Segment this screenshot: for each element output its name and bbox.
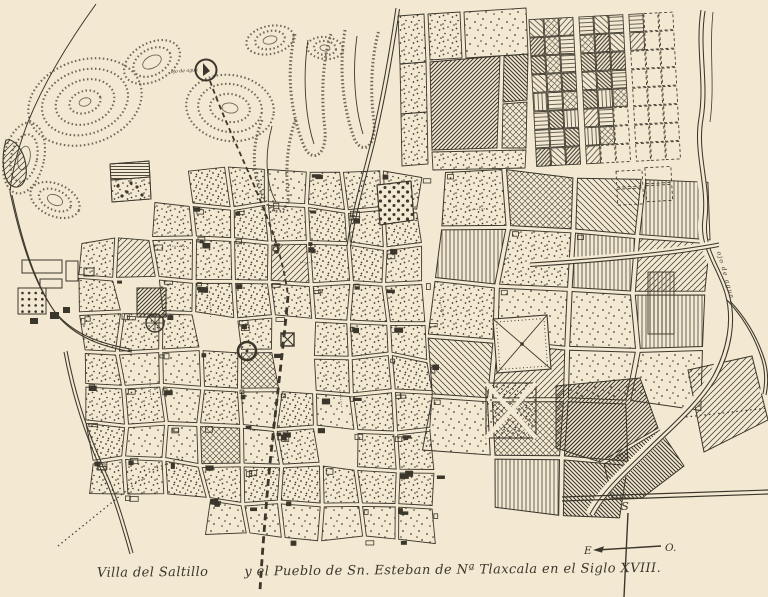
- gully-channel: [305, 40, 314, 144]
- parcel-cell: [579, 16, 594, 34]
- town-block: [241, 392, 278, 428]
- parcel-cell: [563, 91, 578, 109]
- orchard-block: [428, 281, 494, 339]
- town-block: [308, 172, 344, 209]
- town-block: [79, 238, 115, 277]
- tree-dot: [41, 292, 44, 295]
- bold-dot: [129, 181, 132, 184]
- tree-dot: [21, 304, 24, 307]
- building: [434, 514, 438, 519]
- building: [201, 287, 208, 293]
- parcel-cell: [611, 52, 626, 70]
- parcel-cell: [549, 110, 564, 128]
- town-block: [268, 205, 306, 241]
- town-block: [80, 314, 121, 352]
- town-block: [314, 322, 348, 356]
- orchard-block: [428, 338, 493, 398]
- town-block: [188, 167, 230, 207]
- building-solid: [30, 318, 38, 324]
- map-page: ojo de agua ojo de agua S E O. Villa del…: [0, 0, 768, 597]
- parcel-cell: [629, 14, 644, 32]
- historic-map-drawing: ojo de agua ojo de agua S E O.: [0, 0, 768, 597]
- parcel-cell: [551, 147, 566, 165]
- building: [130, 496, 139, 501]
- building-outline: [66, 261, 78, 281]
- town-block: [126, 425, 165, 457]
- town-block: [236, 283, 272, 317]
- bold-dot: [140, 193, 143, 196]
- town-block: [352, 356, 391, 393]
- building: [167, 315, 173, 320]
- town-block: [206, 501, 247, 534]
- tree-dot: [28, 304, 31, 307]
- parcel-cell: [535, 130, 550, 148]
- building: [353, 218, 360, 223]
- town-block: [202, 467, 241, 503]
- parcel-cell: [583, 90, 598, 108]
- parcel-cell: [532, 74, 547, 92]
- bold-dot: [120, 194, 123, 197]
- parcel-cell: [529, 19, 544, 37]
- tree-dot: [34, 304, 37, 307]
- building: [117, 281, 122, 284]
- town-block: [281, 504, 320, 541]
- town-block: [153, 203, 193, 237]
- parcel-cell: [550, 129, 565, 147]
- parcel-cell: [610, 33, 625, 51]
- parcel-cell: [559, 17, 574, 35]
- town-block: [351, 285, 387, 322]
- compass-ew-line: [597, 546, 661, 550]
- parcel-cell: [616, 144, 631, 162]
- town-block: [311, 244, 350, 282]
- town-block: [85, 354, 121, 386]
- hill-contour: [33, 58, 136, 146]
- compass-south-label: S: [621, 499, 629, 513]
- parcel-cell: [663, 86, 678, 104]
- building: [404, 436, 409, 440]
- parcel-cell: [661, 49, 676, 67]
- orchard-block: [648, 272, 674, 334]
- field-strip-cell: [401, 112, 428, 166]
- gully-hachure: [290, 34, 331, 156]
- town-block: [354, 393, 394, 431]
- building: [312, 249, 316, 253]
- parcel-cell: [659, 12, 674, 30]
- town-block: [363, 506, 396, 539]
- building: [318, 428, 325, 433]
- parcel-cell: [595, 34, 610, 52]
- hatched-square: [137, 288, 166, 317]
- parcel-cell: [566, 147, 581, 165]
- hill-contour: [66, 87, 103, 118]
- parcel-cell: [562, 73, 577, 91]
- town-block: [193, 207, 231, 238]
- north-field-strip: [398, 8, 528, 170]
- spring-flag-icon: [203, 63, 210, 76]
- town-block: [117, 238, 156, 277]
- plaza-center-dot: [520, 342, 524, 346]
- town-block: [163, 351, 201, 387]
- town-block: [244, 428, 280, 464]
- town-block: [201, 427, 240, 464]
- field-strip-cell: [430, 56, 500, 150]
- tree-dot: [21, 292, 24, 295]
- building-outline: [40, 279, 62, 288]
- town-block: [392, 356, 432, 391]
- tree-dot: [41, 310, 44, 313]
- hill-contour: [244, 21, 297, 58]
- building: [387, 290, 395, 294]
- field-strip-cell: [432, 150, 526, 170]
- hill-contour: [221, 102, 238, 114]
- building: [400, 511, 408, 515]
- parcel-cell: [580, 35, 595, 53]
- parcel-cell: [664, 104, 679, 122]
- town-block: [86, 424, 125, 461]
- town-block: [315, 359, 350, 393]
- building: [366, 541, 374, 545]
- parcel-cell: [644, 13, 659, 31]
- parcel-cell: [560, 36, 575, 54]
- hill-contour: [253, 28, 286, 52]
- building: [202, 243, 210, 249]
- parcel-cell: [662, 68, 677, 86]
- building: [276, 318, 284, 322]
- parcel-cell: [646, 50, 661, 68]
- town-block: [322, 506, 363, 540]
- parcel-cell: [600, 126, 615, 144]
- caption-part1: Villa del Saltillo: [97, 565, 208, 581]
- bold-dot: [135, 185, 138, 188]
- tree-dot: [28, 298, 31, 301]
- parcel-cell: [585, 127, 600, 145]
- plaza-circle-center: [246, 350, 249, 353]
- building: [165, 390, 173, 395]
- town-block: [234, 205, 268, 241]
- town-block: [166, 425, 198, 463]
- building-solid: [63, 307, 70, 313]
- town-block: [271, 284, 311, 318]
- building: [171, 463, 175, 469]
- parcel-cell: [531, 56, 546, 74]
- town-block: [351, 246, 384, 283]
- tree-dot: [28, 310, 31, 313]
- town-block: [196, 240, 232, 280]
- building: [315, 175, 323, 179]
- parcel-cell: [666, 141, 681, 159]
- compass-ns-line: [624, 513, 628, 597]
- spring-label: ojo de agua: [171, 67, 199, 75]
- parcel-cell: [636, 143, 651, 161]
- building: [426, 284, 430, 290]
- field-strip-cell: [428, 12, 462, 60]
- parcel-cell: [634, 106, 649, 124]
- town-block: [358, 470, 397, 503]
- orchard-block: [576, 178, 641, 234]
- town-block: [229, 167, 265, 207]
- parcel-cell: [631, 51, 646, 69]
- hill-contour: [313, 40, 336, 56]
- tree-dot: [41, 304, 44, 307]
- parcel-cell: [536, 148, 551, 166]
- town-block: [271, 244, 309, 282]
- orchard-bolddots: [377, 181, 414, 225]
- tree-dot: [34, 292, 37, 295]
- parcel-cell: [614, 107, 629, 125]
- parcel-cell: [546, 55, 561, 73]
- parcel-cell: [613, 89, 628, 107]
- hill-contour: [262, 35, 277, 46]
- parcel-cell: [586, 146, 601, 164]
- building: [322, 399, 330, 405]
- field-strip-cell: [400, 62, 427, 114]
- parcel-cell: [564, 110, 579, 128]
- parcel-cell: [601, 145, 616, 163]
- gully-channel: [355, 36, 363, 134]
- town-block: [119, 353, 159, 386]
- parcel-cell: [548, 92, 563, 110]
- crossed-square-x: [281, 333, 294, 346]
- hill-contour: [208, 91, 252, 124]
- building-solid: [50, 312, 59, 319]
- town-block: [399, 473, 434, 506]
- building: [437, 476, 445, 480]
- field-strip-cell: [398, 14, 426, 64]
- field-strip-cell: [503, 54, 528, 102]
- dark-block-bottom: [111, 177, 151, 202]
- parcel-cell: [647, 68, 662, 86]
- parcel-cell: [651, 142, 666, 160]
- parcel-cell: [533, 93, 548, 111]
- parcel-cell: [547, 74, 562, 92]
- orchard-block: [442, 170, 506, 226]
- building: [274, 354, 282, 358]
- building: [354, 328, 359, 333]
- building: [128, 461, 133, 466]
- parcel-cell: [534, 111, 549, 129]
- parcel-cell: [650, 124, 665, 142]
- parcel-cell: [649, 105, 664, 123]
- building: [242, 324, 247, 329]
- tree-dot: [28, 292, 31, 295]
- tree-dot: [41, 298, 44, 301]
- hill-contour: [117, 31, 188, 93]
- tree-dot: [34, 298, 37, 301]
- town-block: [281, 466, 320, 503]
- tree-dot: [21, 298, 24, 301]
- town-block: [79, 278, 120, 312]
- hill-contour: [46, 192, 65, 208]
- compass-arrow-icon: [593, 546, 604, 552]
- hill-contour: [195, 80, 265, 136]
- field-strip-cell: [502, 102, 527, 148]
- orchard-block: [495, 459, 560, 515]
- town-block: [126, 387, 165, 424]
- parcel-cell: [582, 72, 597, 90]
- parcel-cell: [545, 37, 560, 55]
- building: [214, 502, 220, 507]
- hill-contour: [140, 52, 163, 72]
- parcel-cell: [561, 54, 576, 72]
- town-block: [343, 171, 381, 210]
- parcel-cell: [596, 52, 611, 70]
- orchard-block: [570, 292, 636, 349]
- building: [355, 286, 360, 289]
- hill-contour: [78, 96, 92, 107]
- compass-west-label: O.: [665, 542, 676, 554]
- town-block: [235, 242, 268, 281]
- building: [401, 541, 407, 545]
- parcel-cell: [530, 37, 545, 55]
- town-block: [386, 246, 422, 282]
- town-block: [323, 466, 358, 503]
- parcel-cell: [612, 70, 627, 88]
- hill-contour: [50, 72, 121, 132]
- parcel-cell: [632, 69, 647, 87]
- orchard-block: [507, 170, 573, 229]
- hill-contour: [25, 175, 86, 225]
- town-block: [201, 390, 240, 424]
- parcel-cell: [665, 123, 680, 141]
- town-block: [90, 460, 125, 495]
- building-outline: [22, 260, 62, 273]
- parcel-cell: [597, 71, 612, 89]
- tree-dot: [21, 310, 24, 313]
- town-block: [241, 353, 278, 389]
- town-block: [277, 429, 319, 464]
- orchard-block: [423, 398, 491, 455]
- hill-contour: [182, 69, 278, 147]
- bold-dot: [125, 190, 128, 193]
- town-block: [153, 240, 193, 280]
- town-block: [358, 433, 397, 469]
- parcel-cell: [615, 126, 630, 144]
- parcel-cell: [584, 109, 599, 127]
- hill-contour: [128, 41, 176, 83]
- parcel-cell: [635, 124, 650, 142]
- parcel-cell: [581, 53, 596, 71]
- town-block: [203, 351, 238, 388]
- parcel-cell: [630, 32, 645, 50]
- parcel-cell: [633, 88, 648, 106]
- parcel-cell: [544, 18, 559, 36]
- building: [281, 435, 287, 441]
- building: [310, 211, 316, 214]
- building: [423, 179, 431, 183]
- parcel-cell: [609, 15, 624, 33]
- parcel-cell: [648, 87, 663, 105]
- building: [394, 328, 403, 333]
- orchard-block: [436, 229, 506, 284]
- parcel-cell: [594, 15, 609, 33]
- town-block: [277, 392, 313, 428]
- hatched-field: [688, 356, 768, 452]
- compass-east-label: E: [583, 545, 592, 557]
- town-block: [86, 387, 125, 424]
- parcel-cell: [599, 108, 614, 126]
- town-block: [268, 170, 306, 204]
- building: [274, 250, 279, 254]
- parcel-cell: [645, 31, 660, 49]
- parcel-cell: [565, 128, 580, 146]
- town-block: [349, 210, 384, 246]
- tree-dot: [34, 310, 37, 313]
- parcel-cell: [598, 89, 613, 107]
- building: [291, 541, 297, 546]
- bold-dot: [116, 184, 119, 187]
- river-line: [710, 12, 713, 122]
- field-strip-cell: [464, 8, 528, 58]
- building: [250, 508, 257, 512]
- parcel-cell: [660, 31, 675, 49]
